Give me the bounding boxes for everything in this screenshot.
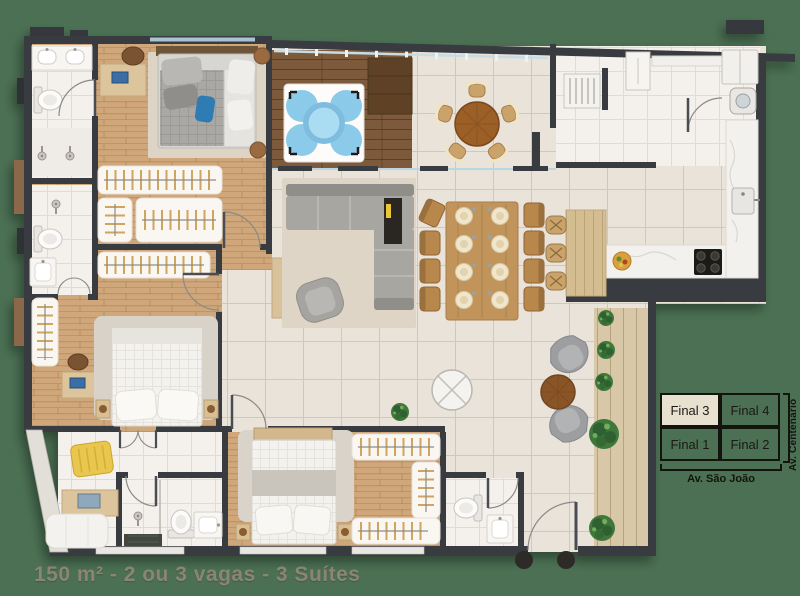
sink [194, 512, 222, 538]
south-windows [96, 547, 424, 554]
yellow-chair [70, 440, 114, 477]
plant [598, 310, 614, 326]
sink [487, 515, 513, 543]
round-game-table [432, 370, 472, 410]
facade-pillar [726, 20, 764, 34]
floor-plan [0, 0, 800, 596]
unit-position-legend: Final 3 Final 4 Final 1 Final 2 Av. São … [660, 393, 800, 485]
breakfast-bar [566, 210, 606, 296]
entry-mat [557, 551, 575, 569]
desk-chair [122, 47, 144, 65]
fruit-bowl [613, 252, 631, 270]
bed [112, 328, 202, 426]
side-table [254, 48, 270, 64]
stove-cooktop [694, 249, 722, 275]
bar-stool [546, 272, 566, 290]
closet-rack [136, 198, 222, 242]
legend-cell-final-1: Final 1 [660, 427, 720, 461]
plan-caption: 150 m² - 2 ou 3 vagas - 3 Suítes [34, 563, 360, 587]
hallway-floor [222, 270, 272, 432]
deck-bar [368, 58, 412, 114]
legend-cell-final-2: Final 2 [720, 427, 780, 461]
blue-pillow [194, 95, 215, 123]
street-line-bottom [660, 464, 782, 471]
bed [252, 440, 336, 544]
street-label-bottom: Av. São João [660, 473, 782, 485]
facade-pillar [70, 30, 88, 37]
master-walk-in-closet [98, 166, 222, 242]
entry-mat [515, 551, 533, 569]
facade-element [17, 78, 25, 104]
closet-rack [352, 518, 440, 544]
laptop [112, 72, 128, 83]
washing-machine [730, 88, 756, 114]
window-shutter-box [14, 160, 24, 214]
hot-tub [284, 84, 364, 162]
closet-rack [98, 198, 132, 242]
grill-fixture [564, 74, 600, 108]
sink [30, 258, 56, 286]
legend-cell-final-3: Final 3 [660, 393, 720, 427]
plant [589, 419, 619, 449]
north-window [150, 38, 255, 42]
facade-element [17, 228, 25, 254]
dresser [254, 428, 332, 440]
closet-rack [352, 434, 440, 460]
closet-rack [98, 166, 222, 194]
plant [391, 403, 409, 421]
side-table [250, 142, 266, 158]
closet-rack [412, 462, 440, 518]
plant [597, 341, 615, 359]
legend-cell-final-4: Final 4 [720, 393, 780, 427]
facade-pillar [30, 27, 64, 37]
master-bed [156, 46, 258, 148]
bar-stool [546, 244, 566, 262]
legend-grid: Final 3 Final 4 Final 1 Final 2 [660, 393, 800, 461]
street-label-right: Av. Centenário [789, 387, 800, 471]
bar-stool [546, 216, 566, 234]
plant [589, 515, 615, 541]
monitor [78, 494, 100, 508]
plant [595, 373, 613, 391]
desk-chair [68, 354, 88, 370]
window-shutter-box [14, 298, 24, 346]
fridge [722, 50, 758, 84]
laptop [70, 378, 85, 388]
lounge-seat [46, 514, 108, 548]
floor-plan-page: 150 m² - 2 ou 3 vagas - 3 Suítes Final 3… [0, 0, 800, 596]
tv-panel [384, 198, 402, 244]
closet-rack [32, 298, 58, 366]
